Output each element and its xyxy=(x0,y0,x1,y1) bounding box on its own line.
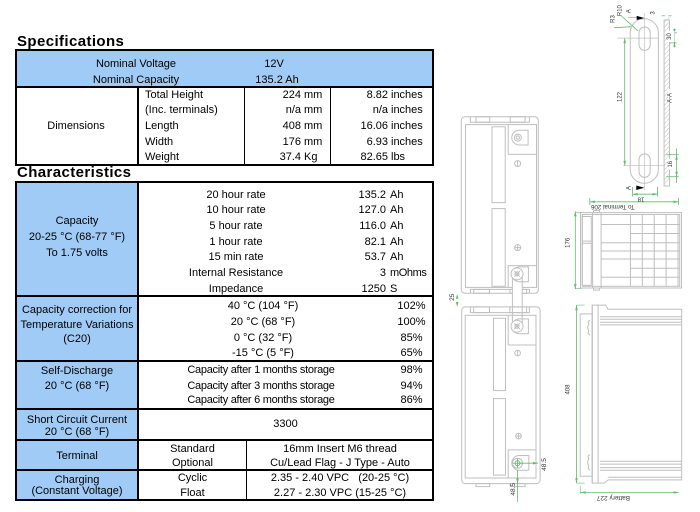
svg-text:A: A xyxy=(627,186,633,190)
svg-text:18: 18 xyxy=(637,195,644,201)
svg-text:30: 30 xyxy=(667,33,673,40)
svg-text:122: 122 xyxy=(617,91,623,102)
svg-text:25: 25 xyxy=(449,293,456,301)
svg-text:3: 3 xyxy=(651,11,657,15)
svg-text:A-A: A-A xyxy=(668,93,674,103)
svg-text:16: 16 xyxy=(668,160,674,167)
svg-text:408: 408 xyxy=(565,384,571,395)
svg-text:Battery 227: Battery 227 xyxy=(596,494,630,501)
svg-text:To Terminal 206: To Terminal 206 xyxy=(590,203,634,210)
svg-text:48.5: 48.5 xyxy=(541,458,548,471)
svg-text:A: A xyxy=(627,9,633,13)
svg-text:R10: R10 xyxy=(618,4,624,16)
svg-text:R3: R3 xyxy=(611,15,617,23)
svg-text:48.5: 48.5 xyxy=(510,483,517,496)
svg-text:176: 176 xyxy=(566,237,572,248)
